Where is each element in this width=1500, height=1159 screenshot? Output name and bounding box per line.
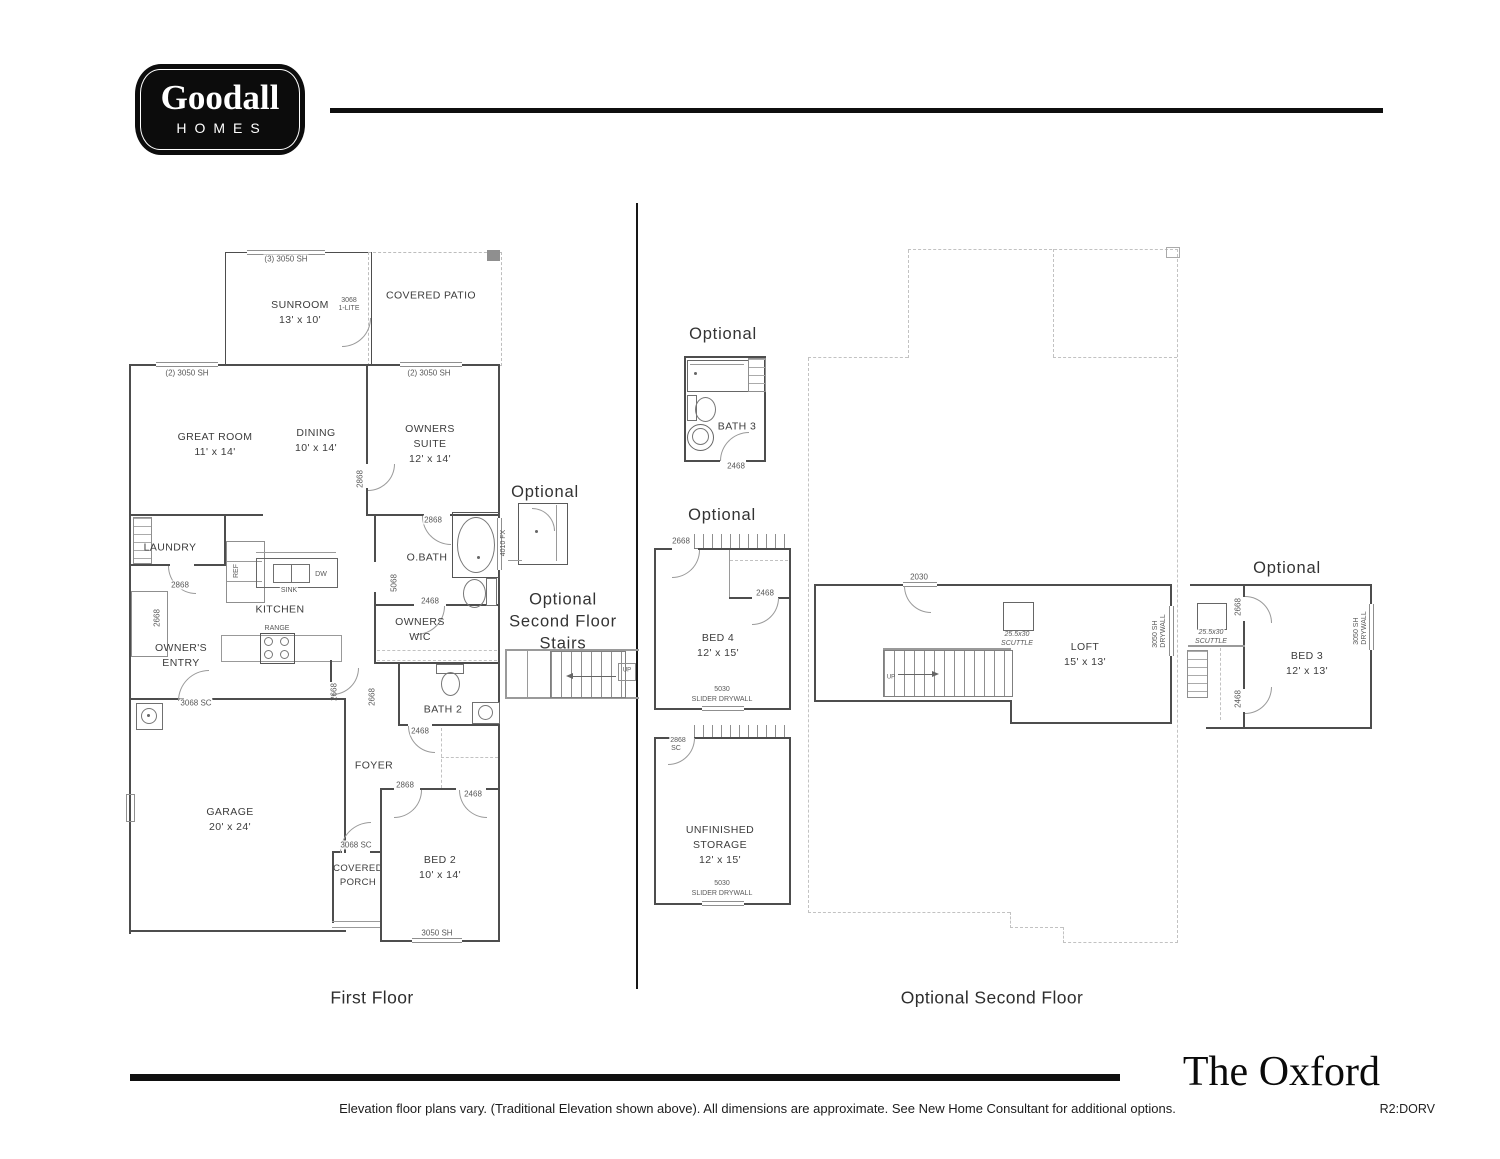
roof-outline	[1053, 357, 1177, 358]
great-room-window	[156, 362, 218, 367]
wall	[778, 597, 790, 599]
wall	[1243, 621, 1245, 689]
goodall-homes-logo: Goodall HOMES	[135, 64, 305, 155]
wall	[380, 788, 394, 790]
stair-wall	[1188, 645, 1245, 647]
wall	[654, 708, 702, 710]
wall	[374, 592, 376, 664]
door-label: 2468	[410, 726, 430, 735]
stair-direction-arrow	[898, 674, 932, 675]
stair-treads	[550, 651, 626, 698]
stair-wall	[505, 649, 507, 699]
door-label: 3068 SC	[179, 698, 212, 707]
porch-step	[332, 921, 382, 922]
door-label: 2868	[423, 515, 443, 524]
door-arc	[904, 586, 931, 613]
wall	[498, 364, 500, 942]
room-label-owners-suite: OWNERS SUITE 12' x 14'	[405, 422, 455, 468]
door-arc	[720, 432, 749, 461]
door-arc	[1245, 687, 1272, 714]
counter-edge	[256, 552, 336, 553]
wall	[398, 724, 408, 726]
sunroom-door-label: 1-LITE	[337, 305, 360, 313]
wall	[366, 488, 368, 516]
wall	[789, 737, 791, 905]
wall	[814, 584, 816, 702]
railing	[694, 534, 791, 549]
room-label-covered-porch: COVERED PORCH	[333, 862, 383, 890]
slider-label: SLIDER DRYWALL	[691, 696, 754, 704]
wall	[654, 903, 704, 905]
wall	[1206, 727, 1372, 729]
wall	[398, 662, 400, 726]
door-label: 3068 SC	[339, 840, 372, 849]
wall	[486, 788, 500, 790]
slider-label: 5030	[713, 880, 731, 888]
wall	[694, 737, 791, 739]
first-floor-title: First Floor	[330, 988, 413, 1009]
room-label-obath: O.BATH	[407, 550, 448, 565]
room-label-laundry: LAUNDRY	[144, 540, 197, 555]
wall	[130, 930, 346, 932]
stair-edge	[1187, 650, 1208, 698]
stair-wall	[527, 649, 528, 699]
roof-outline	[808, 358, 809, 913]
closet-shelf	[730, 560, 788, 561]
wall	[684, 460, 720, 462]
door-label: 2468	[1233, 689, 1242, 709]
disclaimer-text: Elevation floor plans vary. (Traditional…	[250, 1101, 1265, 1116]
stairs-up-label: UP	[886, 675, 896, 682]
optional-bed4-label: Optional	[688, 505, 756, 527]
toilet-tank	[486, 578, 497, 606]
wall	[746, 460, 766, 462]
room-label-dining: DINING 10' x 14'	[295, 426, 337, 456]
wall	[1010, 700, 1012, 724]
arrow-head-icon	[566, 673, 573, 679]
wall	[130, 698, 184, 700]
optional-stairs-label: Optional Second Floor Stairs	[509, 589, 617, 654]
door-label: 2668	[152, 608, 161, 628]
header-rule	[330, 108, 1383, 113]
wic-shelf	[377, 650, 497, 651]
arr ow-head-icon	[932, 671, 939, 677]
tub-drain	[477, 556, 480, 559]
scuttle-label: SCUTTLE	[1000, 640, 1034, 648]
room-label-foyer: FOYER	[355, 758, 393, 773]
opening-label: 5068	[389, 573, 398, 593]
loft-window-label: 2030	[909, 572, 929, 581]
roof-outline	[1063, 927, 1064, 943]
roof-outline	[908, 250, 909, 358]
optional-bed3-label: Optional	[1253, 558, 1321, 580]
wall	[654, 548, 672, 550]
wall	[698, 548, 791, 550]
wall	[654, 548, 656, 710]
door-arc	[672, 550, 700, 578]
door-label: 2868	[170, 580, 190, 589]
shower-glass	[556, 505, 557, 561]
wall	[432, 724, 500, 726]
roof-outline	[808, 357, 908, 358]
door-label: 2868	[395, 780, 415, 789]
floor-plan-sheet: Goodall HOMES (3) 3050 SH 3068 1-LITE SU…	[0, 0, 1500, 1159]
door-label: 2468	[420, 596, 440, 605]
wall	[729, 597, 752, 599]
water-heater-dot	[147, 714, 150, 717]
wall	[654, 737, 656, 905]
bath2-sink-bowl	[478, 705, 493, 720]
door-label: 2468	[726, 461, 746, 470]
obath-window-label: 4010 FX	[500, 529, 508, 557]
logo-word-text: HOMES	[145, 120, 299, 136]
roof-outline	[1053, 249, 1054, 357]
roof-outline	[1010, 927, 1063, 928]
owners-suite-window	[400, 362, 462, 367]
wic-shelf	[377, 660, 497, 661]
wall	[374, 514, 376, 562]
room-label-kitchen: KITCHEN	[256, 602, 305, 617]
roof-outline	[1177, 249, 1178, 943]
closet-line	[441, 757, 498, 758]
plan-name-title: The Oxford	[1040, 1048, 1380, 1096]
room-label-bath2: BATH 2	[424, 702, 462, 717]
wall	[380, 790, 382, 942]
footer-rule	[130, 1074, 1120, 1081]
toilet-bowl	[441, 672, 460, 696]
bath3-shelves	[748, 358, 766, 392]
toilet-bowl	[463, 579, 486, 608]
second-floor-title: Optional Second Floor	[901, 988, 1084, 1009]
burner	[264, 650, 273, 659]
owners-suite-window-label: (2) 3050 SH	[406, 368, 451, 377]
bed2-window-label: 3050 SH	[420, 928, 453, 937]
door-label: 2468	[755, 588, 775, 597]
door-arc	[1245, 596, 1272, 623]
wall	[789, 548, 791, 710]
roof-outline	[908, 249, 1178, 250]
stairs-up-label: UP	[622, 668, 632, 675]
door-arc	[178, 670, 209, 701]
door-arc	[752, 598, 779, 625]
ref-label: REF	[233, 563, 241, 579]
door-label: 2668	[329, 682, 338, 702]
revision-code: R2:DORV	[1345, 1102, 1435, 1116]
bed2-window	[412, 938, 462, 943]
room-label-sunroom: SUNROOM 13' x 10'	[271, 298, 329, 328]
optional-shower-label: Optional	[511, 482, 579, 504]
sunroom-window-label: (3) 3050 SH	[263, 254, 308, 263]
burner	[280, 637, 289, 646]
toilet-bowl	[695, 397, 716, 422]
wall	[194, 564, 225, 566]
door-label: 2668	[1233, 597, 1242, 617]
closet-line	[441, 728, 442, 788]
room-label-covered-patio: COVERED PATIO	[386, 288, 476, 303]
door-arc	[368, 464, 395, 491]
room-label-bed3: BED 3 12' x 13'	[1286, 649, 1328, 679]
burner	[280, 650, 289, 659]
tub-edge	[690, 364, 744, 365]
sink-basin	[273, 564, 292, 583]
slider-label: 5030	[713, 686, 731, 694]
covered-patio-outline	[368, 252, 502, 366]
wall	[344, 698, 346, 853]
door-label: 2668	[671, 536, 691, 545]
porch-step	[332, 927, 382, 928]
sunroom-door-label: 3068	[340, 297, 358, 305]
logo-brand-text: Goodall	[141, 76, 299, 120]
door-label: 2468	[463, 789, 483, 798]
room-label-owners-wic: OWNERS WIC	[395, 615, 445, 645]
room-label-bed4: BED 4 12' x 15'	[697, 631, 739, 661]
wall	[366, 364, 368, 464]
scuttle-access	[1197, 603, 1227, 630]
wall	[420, 788, 456, 790]
range-label: RANGE	[264, 625, 291, 633]
garage-door-recess	[126, 794, 135, 822]
slider-label: SLIDER DRYWALL	[691, 890, 754, 898]
room-label-great-room: GREAT ROOM 11' x 14'	[178, 430, 253, 460]
patio-post	[487, 250, 500, 261]
plan-divider-line	[636, 203, 638, 989]
storage-slider-wall	[702, 901, 744, 906]
wall	[684, 356, 686, 462]
room-label-bed2: BED 2 10' x 14'	[419, 853, 461, 883]
room-label-bath3: BATH 3	[718, 419, 756, 434]
closet-wall	[729, 550, 730, 598]
optional-bath3-label: Optional	[689, 324, 757, 346]
stair-direction-arrow	[572, 676, 616, 677]
wall	[1243, 712, 1245, 729]
sink-basin	[291, 564, 310, 583]
roof-outline	[808, 912, 1010, 913]
door-label: 2668	[367, 687, 376, 707]
tub-basin	[457, 517, 495, 573]
roof-corner-box	[1166, 247, 1180, 258]
wall	[814, 584, 904, 586]
sink-label: SINK	[280, 587, 298, 595]
logo-border: Goodall HOMES	[140, 69, 300, 150]
wall	[744, 708, 791, 710]
wall	[1190, 584, 1372, 586]
wall	[212, 698, 346, 700]
scuttle-label: 25.5x30	[1198, 629, 1225, 637]
tub-drain	[694, 372, 697, 375]
closet-line	[1220, 648, 1221, 720]
scuttle-label: 25.5x30	[1004, 631, 1031, 639]
loft-drywall-window	[1169, 606, 1174, 656]
scuttle-access	[1003, 602, 1034, 631]
great-room-window-label: (2) 3050 SH	[164, 368, 209, 377]
bath3-sink-bowl	[692, 428, 709, 445]
wall	[742, 903, 791, 905]
wall	[130, 514, 263, 516]
wall	[130, 564, 170, 566]
door-label: 2868	[355, 469, 364, 489]
wall	[936, 584, 1172, 586]
room-label-loft: LOFT 15' x 13'	[1064, 640, 1106, 670]
roof-outline	[1010, 912, 1011, 928]
bed4-slider-wall	[702, 706, 744, 711]
door-arc	[668, 738, 695, 765]
bed3-drywall-window	[1369, 604, 1374, 650]
drywall-label: 3050 SH DRYWALL	[1353, 610, 1369, 645]
drywall-label: 3050 SH DRYWALL	[1152, 613, 1168, 648]
wall	[814, 700, 1012, 702]
room-label-owners-entry: OWNER'S ENTRY	[155, 641, 207, 671]
roof-outline	[1063, 942, 1178, 943]
door-arc	[394, 790, 422, 818]
wall	[1010, 722, 1172, 724]
wall	[374, 604, 414, 606]
burner	[264, 637, 273, 646]
room-label-storage: UNFINISHED STORAGE 12' x 15'	[686, 823, 754, 869]
dishwasher-label: DW	[314, 571, 328, 579]
shower-step	[508, 560, 522, 561]
room-label-garage: GARAGE 20' x 24'	[206, 805, 253, 835]
